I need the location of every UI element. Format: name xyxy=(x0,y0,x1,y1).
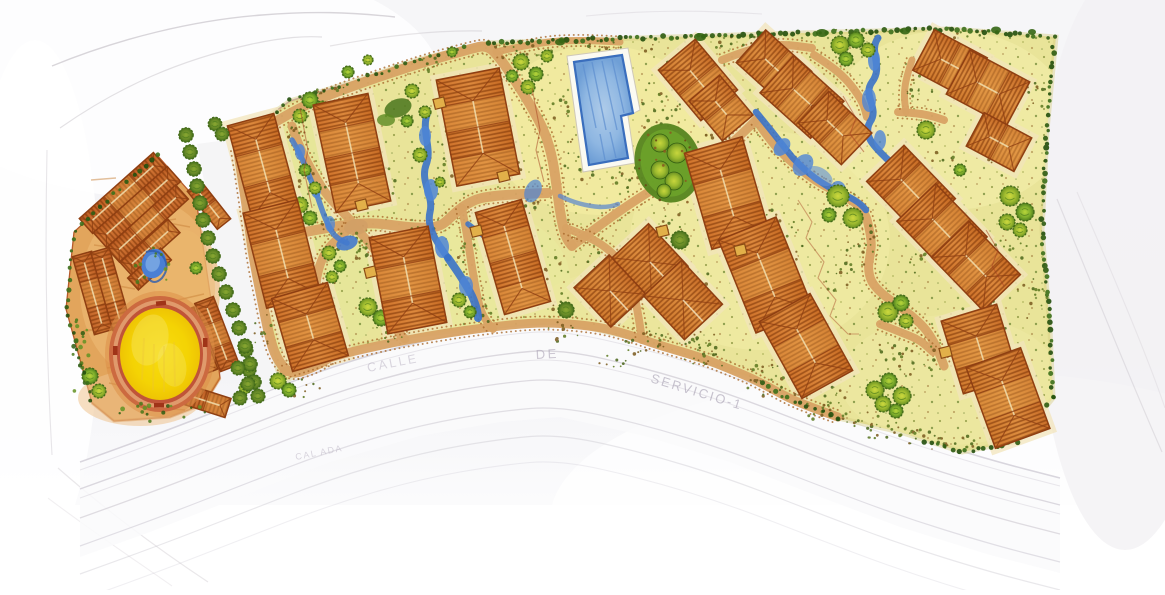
svg-text:DE: DE xyxy=(535,346,559,362)
